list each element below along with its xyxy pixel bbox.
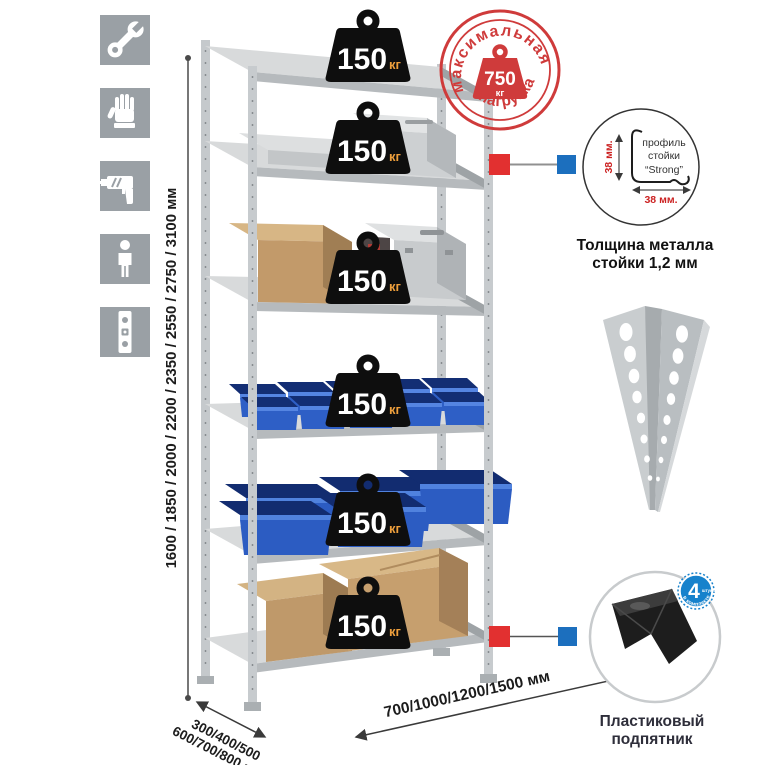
max-load-stamp: максимальная нагрузка 750 кг — [434, 8, 564, 129]
foot-caption-line1: Пластиковый — [600, 713, 705, 730]
spirit-level-icon — [100, 307, 150, 357]
angle-post-image — [603, 306, 710, 512]
rack-front-right-post — [484, 89, 493, 678]
load-unit: кг — [389, 402, 402, 417]
feature-icons-column — [97, 15, 150, 357]
load-unit: кг — [389, 521, 402, 536]
kit-count-note: штуки — [702, 588, 715, 593]
plastic-foot-detail: 4 штуки в комплекте Пластиковый подпятни… — [590, 572, 720, 748]
height-dimension-label: 1600 / 1850 / 2000 / 2200 / 2350 / 2550 … — [163, 188, 180, 569]
stamp-weight-icon: 750 кг — [473, 47, 527, 100]
person-icon — [100, 234, 150, 284]
load-value: 150 — [337, 265, 387, 298]
foot-callout-connector — [489, 626, 577, 647]
profile-label-line1: профиль — [642, 137, 686, 149]
width-dimension-label: 700/1000/1200/1500 мм — [382, 668, 551, 721]
profile-label-line3: “Strong” — [645, 164, 683, 176]
gloves-icon — [100, 88, 150, 138]
profile-dim-width: 38 мм. — [644, 194, 677, 206]
shelving-product-diagram: 150 кг 150 кг 150 кг 150 кг 150 кг 150 к… — [0, 0, 765, 765]
depth-dimension: 300/400/500 600/700/800 мм — [170, 702, 272, 765]
blue-marker-top — [557, 155, 576, 174]
post-profile-detail: 38 мм. 38 мм. профиль стойки “Strong” То… — [577, 109, 714, 272]
profile-dim-height: 38 мм. — [603, 140, 615, 173]
profile-label-line2: стойки — [648, 150, 680, 162]
load-badge-1: 150 кг — [326, 13, 411, 82]
blue-marker-bottom — [558, 627, 577, 646]
kit-count-value: 4 — [688, 580, 700, 603]
wrench-icon — [100, 15, 150, 65]
profile-callout-connector — [489, 154, 576, 175]
load-value: 150 — [337, 388, 387, 421]
load-badge-4: 150 кг — [326, 358, 411, 427]
load-unit: кг — [389, 279, 402, 294]
red-marker-bottom — [489, 626, 510, 647]
load-unit: кг — [389, 149, 402, 164]
load-unit: кг — [389, 57, 402, 72]
height-dimension: 1600 / 1850 / 2000 / 2200 / 2350 / 2550 … — [163, 58, 188, 698]
red-marker-top — [489, 154, 510, 175]
profile-caption-line2: стойки 1,2 мм — [592, 255, 697, 272]
drill-icon — [97, 161, 150, 211]
load-value: 150 — [337, 610, 387, 643]
foot-caption-line2: подпятник — [611, 731, 692, 748]
stamp-value: 750 — [484, 69, 516, 90]
load-value: 150 — [337, 507, 387, 540]
load-unit: кг — [389, 624, 402, 639]
stamp-unit: кг — [496, 88, 505, 99]
load-value: 150 — [337, 135, 387, 168]
profile-caption-line1: Толщина металла — [577, 237, 714, 254]
width-dimension: 700/1000/1200/1500 мм — [356, 668, 640, 737]
load-value: 150 — [337, 43, 387, 76]
